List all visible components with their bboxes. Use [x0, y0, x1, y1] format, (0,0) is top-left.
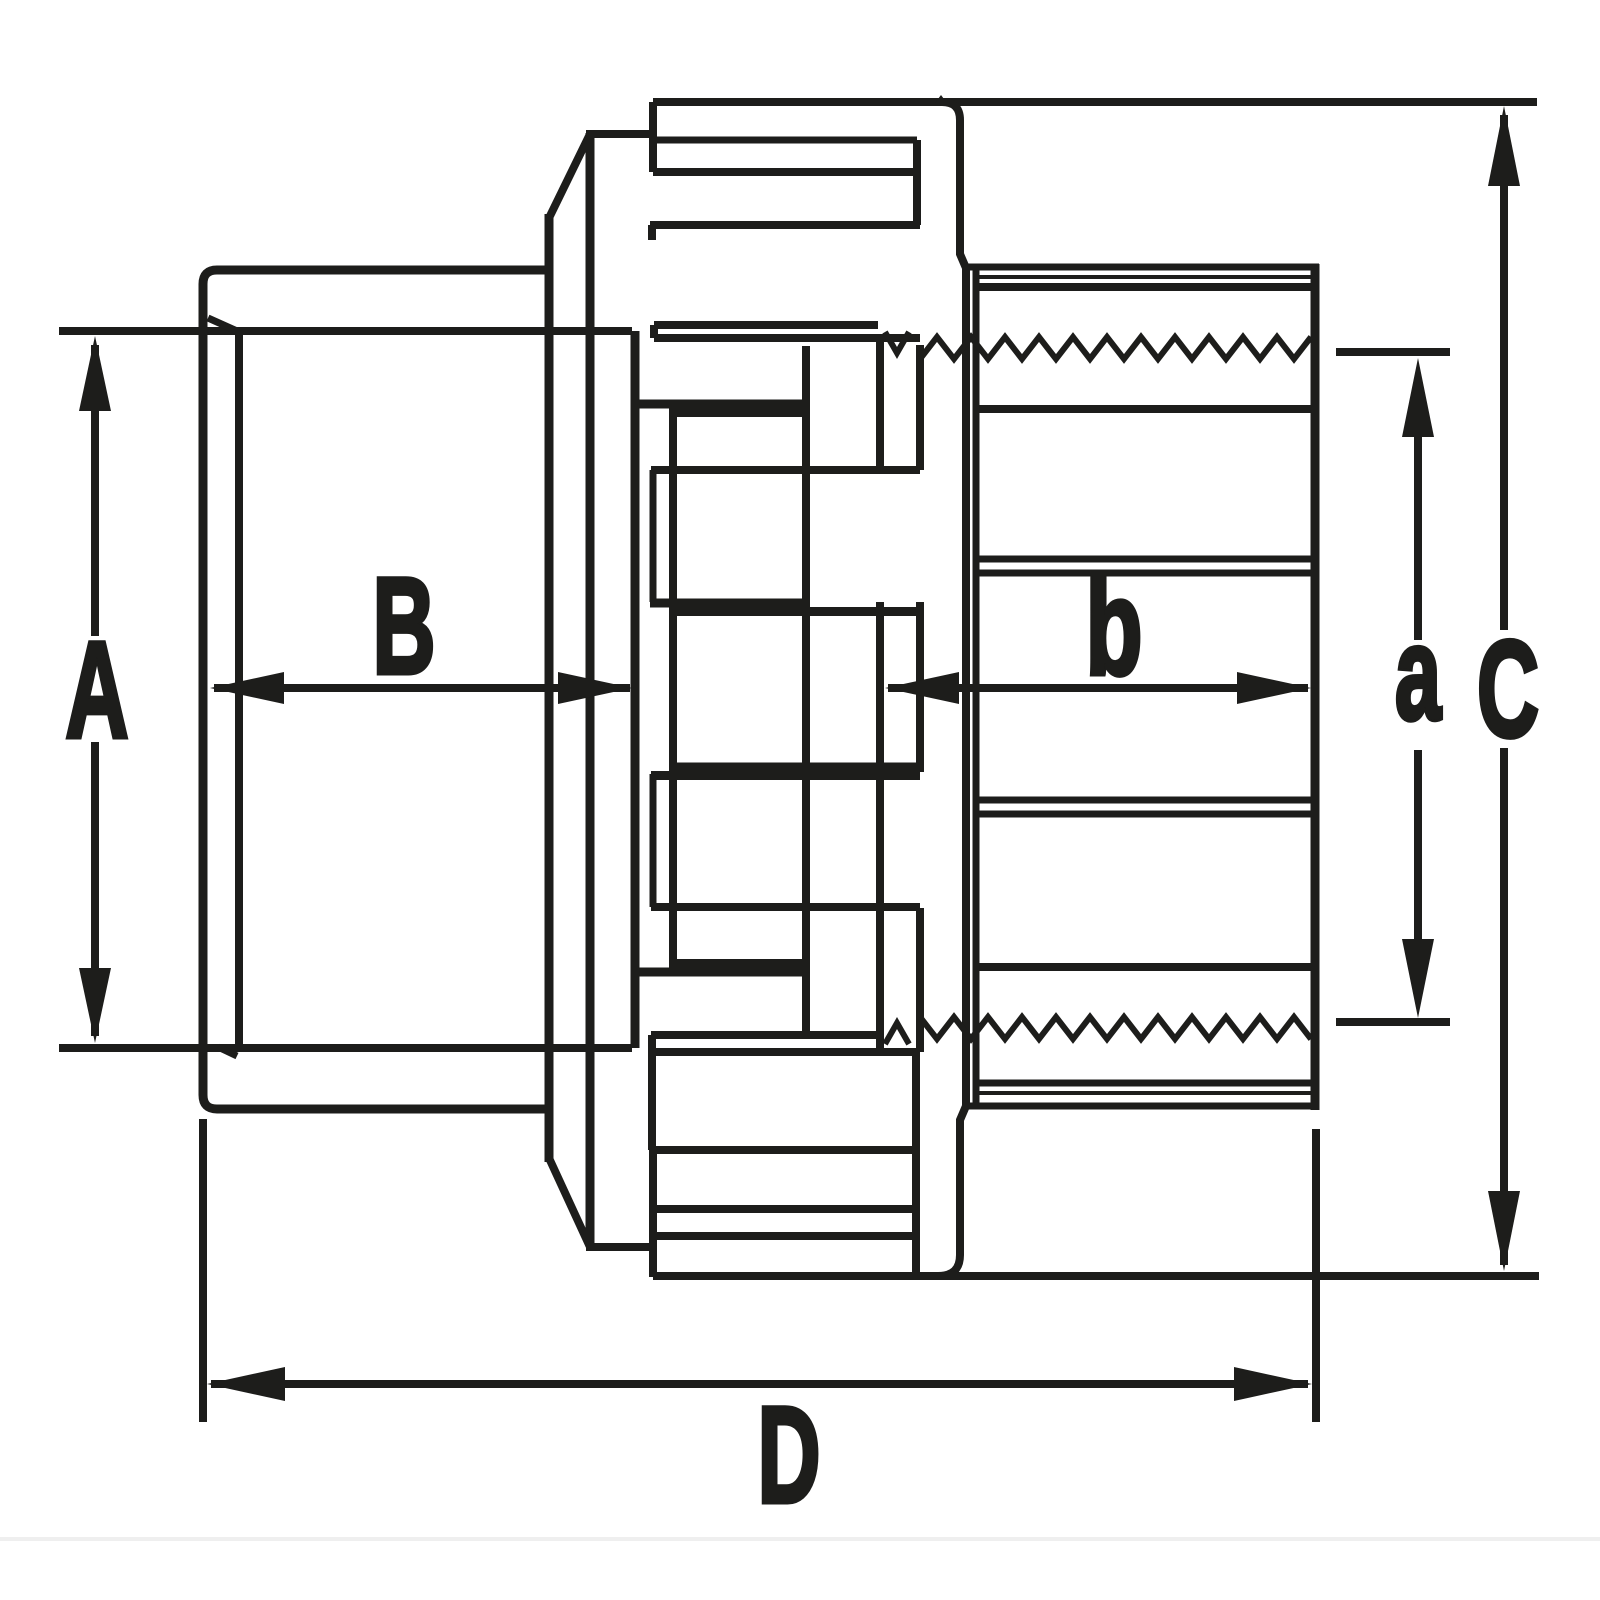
svg-text:a: a	[1395, 600, 1442, 748]
svg-text:b: b	[1086, 551, 1143, 703]
svg-text:D: D	[758, 1379, 821, 1532]
svg-text:B: B	[373, 550, 436, 703]
svg-text:A: A	[66, 614, 129, 767]
svg-text:C: C	[1477, 613, 1539, 766]
